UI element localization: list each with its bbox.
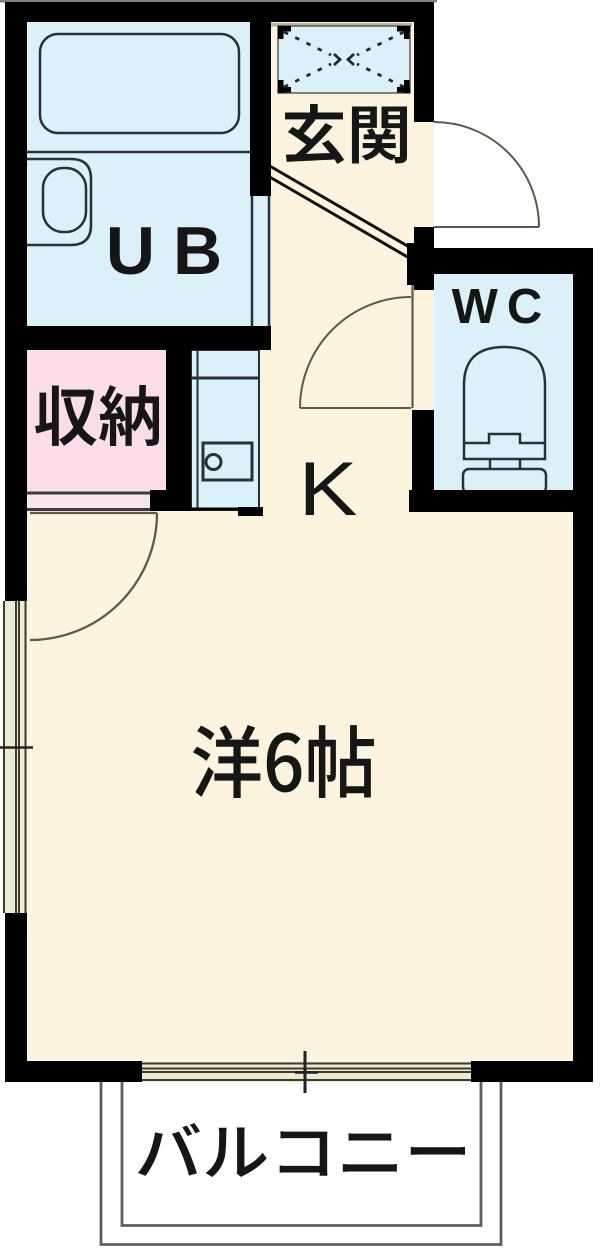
svg-text:UB: UB — [106, 213, 240, 289]
svg-text:K: K — [299, 447, 358, 532]
svg-text:WC: WC — [452, 280, 552, 334]
